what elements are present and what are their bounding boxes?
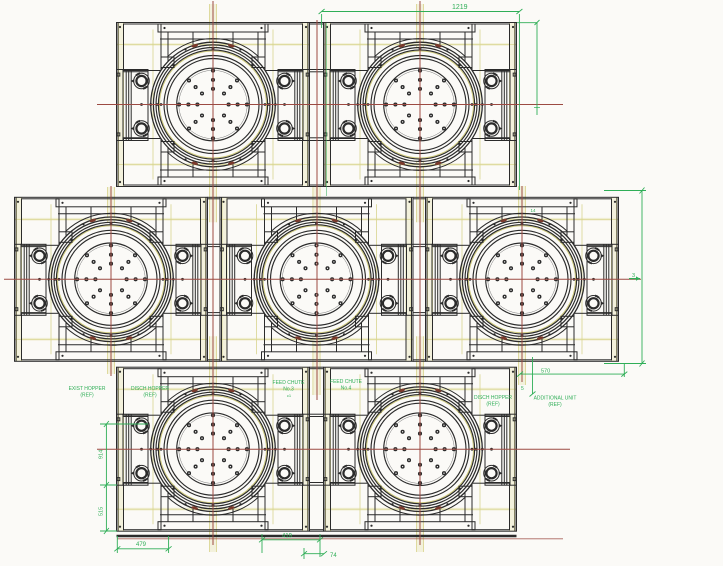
svg-text:1219: 1219 [452, 4, 468, 11]
svg-text:479: 479 [136, 542, 147, 548]
svg-text:914: 914 [99, 450, 105, 459]
svg-text:14: 14 [530, 208, 536, 213]
svg-text:ADDITIONAL UNIT: ADDITIONAL UNIT [534, 396, 577, 402]
svg-text:EXIST HOPPER: EXIST HOPPER [69, 386, 106, 392]
svg-text:(REF): (REF) [143, 393, 157, 399]
svg-text:(REF): (REF) [486, 402, 500, 408]
svg-text:No.3: No.3 [283, 387, 294, 393]
svg-text:FEED CHUTE: FEED CHUTE [330, 379, 363, 385]
svg-text:DISCH HOPPER: DISCH HOPPER [131, 386, 169, 392]
svg-text:74: 74 [330, 553, 337, 559]
svg-text:No.4: No.4 [341, 386, 352, 392]
svg-text:5: 5 [521, 386, 524, 392]
svg-text:FEED CHUTE: FEED CHUTE [273, 380, 306, 386]
svg-text:3: 3 [632, 273, 635, 279]
svg-text:(REF): (REF) [80, 393, 94, 399]
svg-text:(REF): (REF) [548, 402, 562, 408]
svg-text:419: 419 [282, 534, 293, 540]
svg-text:515: 515 [99, 507, 105, 516]
svg-text:570: 570 [541, 369, 550, 375]
svg-text:DISCH HOPPER: DISCH HOPPER [474, 395, 512, 401]
